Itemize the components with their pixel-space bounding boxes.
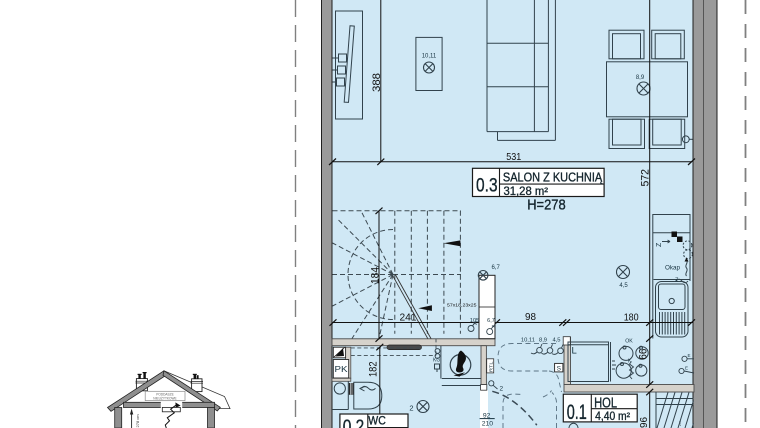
svg-text:4,40 m²: 4,40 m² xyxy=(595,411,630,423)
svg-text:96: 96 xyxy=(639,417,650,428)
svg-text:278 cm: 278 cm xyxy=(135,414,140,428)
svg-text:180: 180 xyxy=(624,312,639,324)
svg-text:6,7: 6,7 xyxy=(492,265,501,271)
svg-text:8,9: 8,9 xyxy=(539,338,547,344)
svg-text:2: 2 xyxy=(409,404,413,413)
svg-text:182: 182 xyxy=(368,362,380,378)
svg-text:241: 241 xyxy=(400,312,417,324)
svg-text:0.2: 0.2 xyxy=(343,417,365,428)
svg-text:NIEUŻYTKOWE: NIEUŻYTKOWE xyxy=(153,395,176,400)
svg-text:L: L xyxy=(572,346,577,357)
svg-text:HOL: HOL xyxy=(594,395,617,412)
svg-text:531: 531 xyxy=(506,151,521,163)
svg-text:388: 388 xyxy=(371,73,383,92)
svg-text:10,11: 10,11 xyxy=(422,54,437,60)
svg-text:0.1: 0.1 xyxy=(567,401,587,424)
svg-text:H=278: H=278 xyxy=(527,197,566,213)
svg-text:zw: zw xyxy=(677,421,682,426)
svg-text:210: 210 xyxy=(482,420,494,427)
svg-text:Okap: Okap xyxy=(665,264,681,271)
svg-text:OK: OK xyxy=(625,339,633,345)
svg-text:KG: KG xyxy=(433,358,440,364)
svg-text:E: E xyxy=(688,353,691,358)
svg-text:2: 2 xyxy=(500,386,504,393)
svg-text:RTL: RTL xyxy=(489,361,494,372)
svg-text:WC: WC xyxy=(368,415,386,427)
svg-text:66: 66 xyxy=(638,349,650,360)
svg-text:Z: Z xyxy=(656,242,663,247)
svg-text:6,7: 6,7 xyxy=(487,318,495,324)
svg-text:4,5: 4,5 xyxy=(619,283,628,289)
svg-text:4,5: 4,5 xyxy=(552,338,560,344)
svg-text:10,11: 10,11 xyxy=(521,338,535,344)
svg-text:57x18,23x25: 57x18,23x25 xyxy=(447,302,477,308)
svg-text:SALON Z KUCHNIĄ: SALON Z KUCHNIĄ xyxy=(503,170,603,185)
svg-text:0.3: 0.3 xyxy=(476,176,498,197)
svg-text:184: 184 xyxy=(370,267,382,284)
svg-text:E: E xyxy=(685,366,688,371)
svg-text:31,28 m²: 31,28 m² xyxy=(504,186,549,198)
svg-text:PK: PK xyxy=(335,365,349,374)
svg-text:8,9: 8,9 xyxy=(636,75,645,81)
svg-text:98: 98 xyxy=(525,311,536,323)
svg-text:572: 572 xyxy=(640,169,652,187)
svg-text:S: S xyxy=(557,365,562,372)
